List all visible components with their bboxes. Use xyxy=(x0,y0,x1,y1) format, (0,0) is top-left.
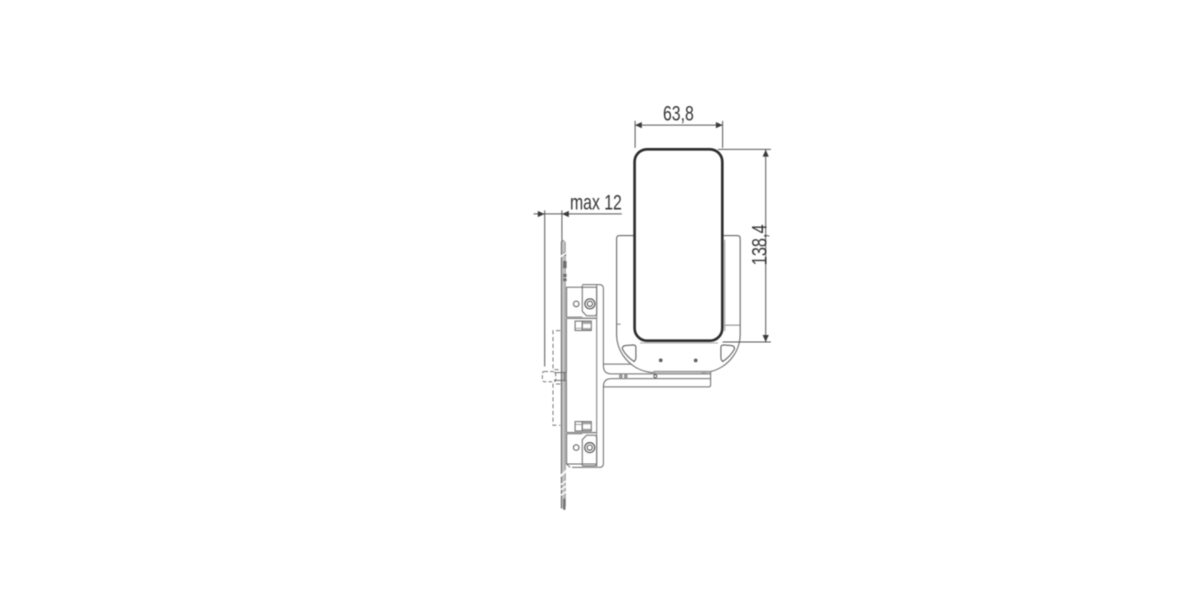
svg-text:138,4: 138,4 xyxy=(747,224,771,265)
svg-text:max 12: max 12 xyxy=(570,191,622,215)
svg-text:63,8: 63,8 xyxy=(663,102,694,126)
